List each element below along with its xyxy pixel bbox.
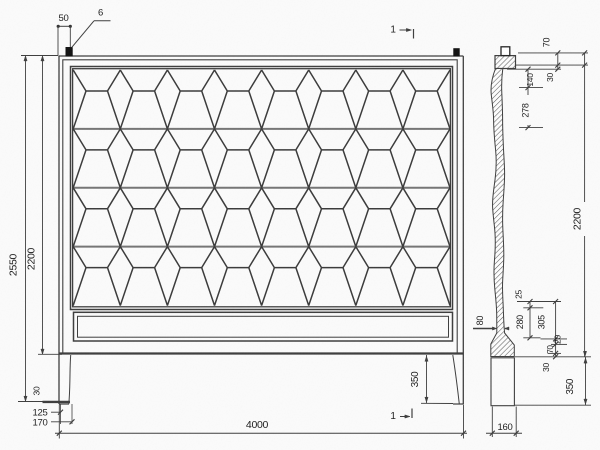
svg-text:20: 20 (553, 335, 563, 344)
svg-text:6: 6 (98, 8, 103, 19)
svg-text:70: 70 (546, 345, 555, 354)
svg-text:1: 1 (390, 25, 396, 36)
svg-text:2200: 2200 (26, 247, 38, 270)
svg-text:4000: 4000 (246, 419, 269, 431)
svg-text:278: 278 (521, 103, 531, 117)
svg-text:140: 140 (525, 73, 535, 87)
svg-text:305: 305 (536, 315, 546, 329)
svg-text:170: 170 (33, 418, 48, 429)
svg-text:30: 30 (545, 73, 555, 82)
svg-text:2200: 2200 (572, 207, 584, 230)
svg-text:70: 70 (542, 38, 552, 48)
svg-text:350: 350 (565, 378, 576, 395)
svg-text:25: 25 (514, 290, 524, 299)
svg-text:30: 30 (541, 363, 551, 372)
svg-text:80: 80 (475, 316, 485, 326)
svg-text:30: 30 (32, 386, 42, 395)
svg-text:50: 50 (59, 13, 69, 24)
svg-text:350: 350 (410, 371, 421, 388)
svg-text:1: 1 (390, 411, 396, 422)
svg-text:160: 160 (498, 422, 513, 433)
svg-text:2550: 2550 (8, 253, 20, 276)
svg-text:280: 280 (515, 315, 525, 329)
